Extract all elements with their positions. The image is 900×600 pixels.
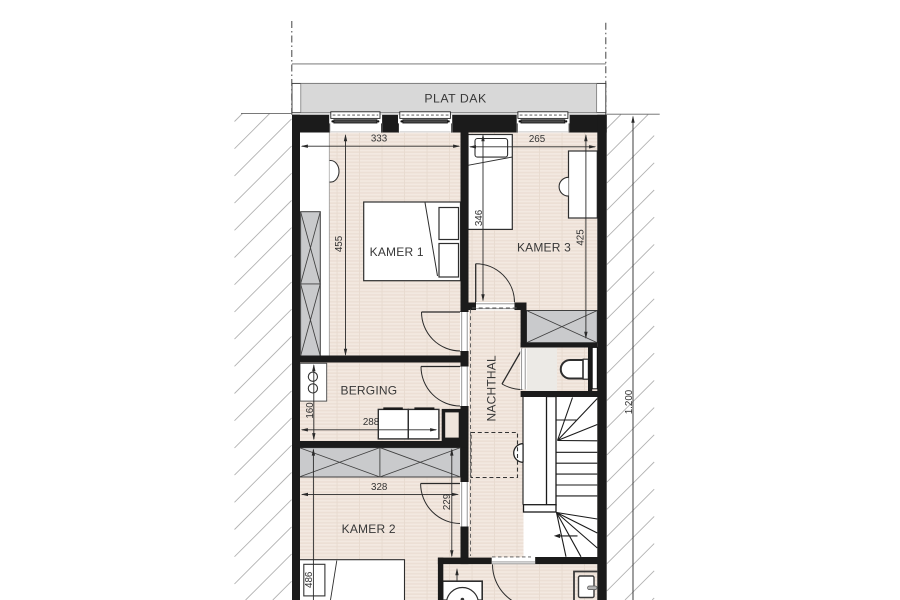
svg-text:486: 486 [304, 571, 315, 588]
svg-text:KAMER 3: KAMER 3 [517, 241, 571, 255]
svg-text:NACHTHAL: NACHTHAL [484, 355, 498, 421]
svg-text:265: 265 [529, 134, 546, 145]
svg-text:333: 333 [371, 133, 388, 144]
svg-text:455: 455 [334, 235, 345, 252]
svg-text:346: 346 [474, 209, 485, 226]
svg-text:KAMER 2: KAMER 2 [342, 522, 396, 536]
svg-text:KAMER 1: KAMER 1 [370, 245, 424, 259]
svg-text:288: 288 [363, 417, 380, 428]
svg-text:425: 425 [576, 229, 587, 246]
svg-text:PLAT DAK: PLAT DAK [424, 91, 487, 105]
svg-text:160: 160 [305, 402, 316, 419]
svg-text:229: 229 [442, 494, 453, 510]
svg-text:1.200: 1.200 [624, 389, 635, 414]
svg-text:328: 328 [371, 482, 388, 493]
svg-text:BERGING: BERGING [341, 384, 398, 398]
